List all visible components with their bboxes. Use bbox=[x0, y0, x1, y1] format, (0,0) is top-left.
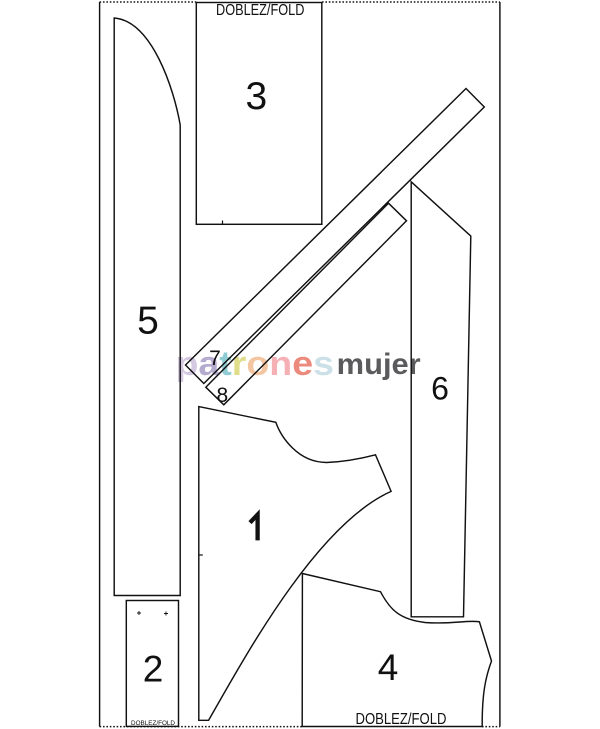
svg-text:5: 5 bbox=[137, 300, 159, 343]
svg-text:DOBLEZ/FOLD: DOBLEZ/FOLD bbox=[216, 2, 304, 19]
svg-text:6: 6 bbox=[431, 371, 449, 407]
svg-text:DOBLEZ/FOLD: DOBLEZ/FOLD bbox=[356, 711, 447, 728]
svg-text:4: 4 bbox=[378, 647, 399, 688]
svg-text:DOBLEZ/FOLD: DOBLEZ/FOLD bbox=[131, 720, 175, 727]
svg-text:8: 8 bbox=[216, 384, 228, 407]
svg-text:2: 2 bbox=[143, 648, 164, 689]
svg-text:mujer: mujer bbox=[337, 348, 421, 381]
svg-text:7: 7 bbox=[209, 347, 221, 370]
svg-text:3: 3 bbox=[245, 75, 267, 118]
